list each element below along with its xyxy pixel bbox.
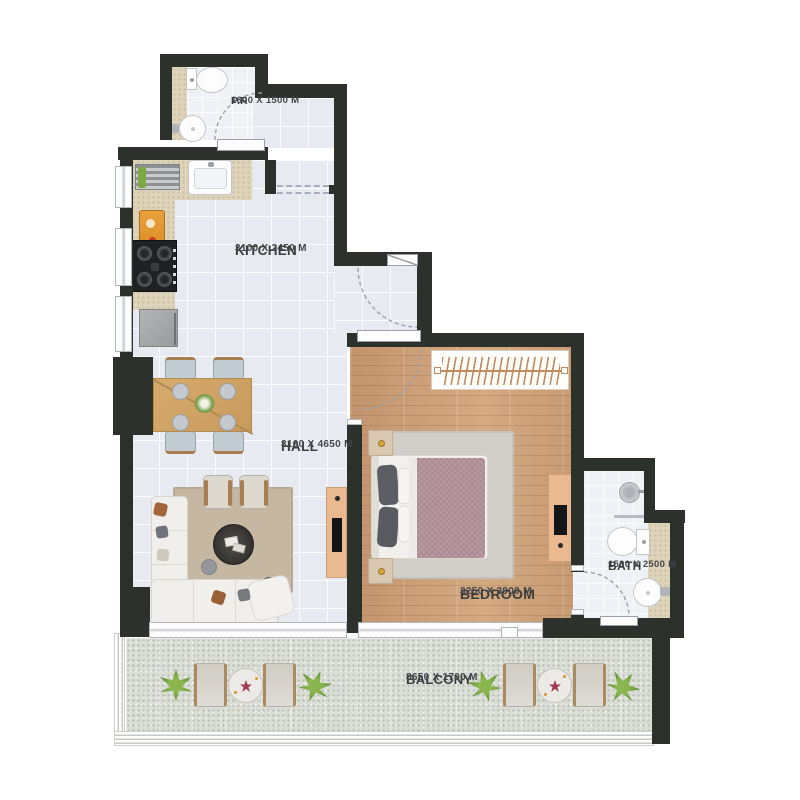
room-dims: 1600 X 1500 M [231, 95, 299, 106]
room-dims: 8650 X 1700 M [406, 672, 478, 684]
floor-plan: P.R 1600 X 1500 M KITCHEN 3100 X 2450 M … [0, 0, 800, 800]
room-dims: 1500 X 2500 M [608, 559, 676, 570]
room-dims: 3100 X 2450 M [235, 243, 307, 255]
room-dims: 3100 X 4650 M [281, 439, 353, 451]
entrance-door-arc [358, 268, 417, 327]
room-dims: 3250 X 3900 M [460, 586, 532, 598]
door-swing-arcs [0, 0, 800, 800]
bath-door-arc [584, 572, 629, 617]
bedroom-door-arc [361, 349, 421, 409]
